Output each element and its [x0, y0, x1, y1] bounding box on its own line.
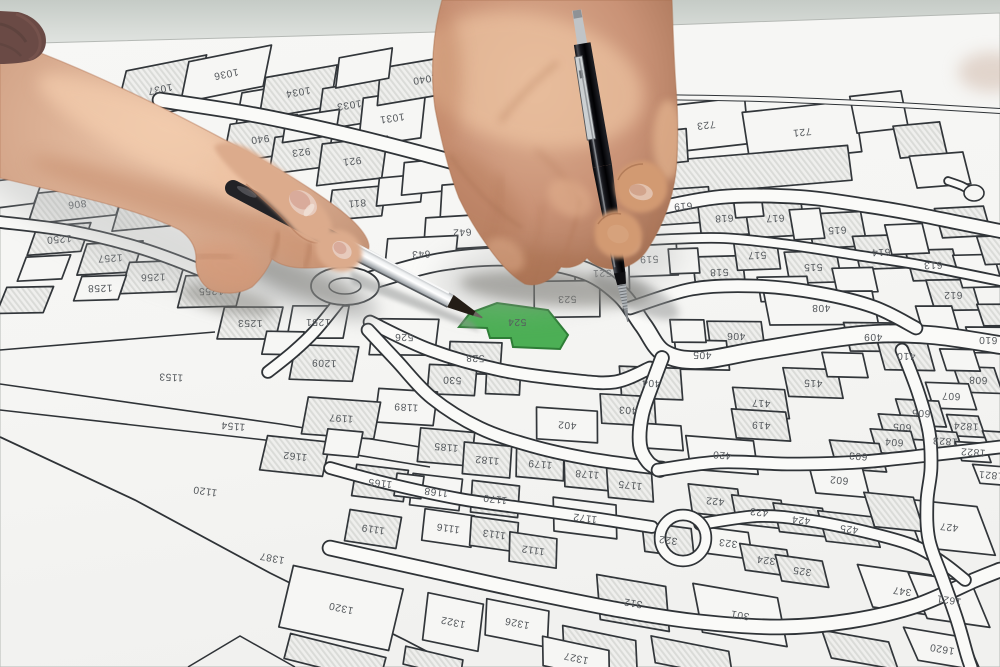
svg-text:419: 419 [751, 418, 770, 430]
svg-text:615: 615 [827, 224, 846, 236]
svg-text:517: 517 [747, 249, 766, 261]
svg-text:427: 427 [939, 520, 959, 533]
svg-text:613: 613 [923, 259, 942, 271]
svg-text:1258: 1258 [87, 282, 112, 294]
svg-text:608: 608 [968, 374, 987, 386]
svg-text:1153: 1153 [159, 370, 184, 382]
svg-text:423: 423 [749, 505, 769, 518]
svg-text:604: 604 [884, 435, 903, 447]
svg-text:528: 528 [465, 352, 484, 363]
svg-text:614: 614 [871, 246, 890, 258]
svg-text:612: 612 [944, 289, 963, 300]
svg-text:1154: 1154 [220, 419, 245, 432]
svg-text:610: 610 [979, 334, 998, 345]
svg-text:607: 607 [941, 390, 960, 402]
svg-text:602: 602 [829, 473, 849, 486]
svg-text:518: 518 [709, 266, 728, 278]
svg-text:1178: 1178 [574, 467, 599, 480]
svg-text:605: 605 [892, 420, 911, 432]
svg-text:1821: 1821 [978, 468, 1000, 481]
svg-text:425: 425 [839, 522, 859, 535]
svg-text:721: 721 [792, 125, 812, 138]
svg-text:408: 408 [812, 302, 831, 313]
svg-text:424: 424 [791, 513, 811, 526]
svg-text:530: 530 [442, 374, 461, 386]
svg-text:1823: 1823 [932, 434, 958, 447]
svg-text:642: 642 [452, 225, 471, 237]
svg-text:606: 606 [911, 407, 930, 419]
svg-text:409: 409 [864, 331, 883, 342]
svg-text:1179: 1179 [527, 457, 552, 470]
svg-text:618: 618 [714, 211, 733, 223]
svg-text:1251: 1251 [305, 316, 330, 327]
svg-text:404: 404 [641, 377, 660, 389]
svg-text:515: 515 [803, 261, 822, 273]
svg-text:617: 617 [765, 211, 784, 223]
svg-text:402: 402 [557, 418, 577, 430]
svg-text:1182: 1182 [474, 453, 499, 466]
svg-text:619: 619 [673, 199, 693, 211]
svg-text:1189: 1189 [394, 400, 419, 412]
svg-text:524: 524 [508, 316, 527, 327]
svg-text:1824: 1824 [953, 419, 979, 431]
svg-text:1822: 1822 [960, 445, 986, 458]
svg-text:921: 921 [342, 154, 362, 167]
svg-text:420: 420 [712, 448, 732, 460]
svg-text:1185: 1185 [433, 440, 458, 453]
svg-text:415: 415 [803, 377, 822, 389]
svg-text:410: 410 [896, 350, 915, 361]
svg-text:1253: 1253 [237, 317, 262, 328]
svg-text:723: 723 [696, 118, 716, 131]
svg-text:643: 643 [411, 248, 430, 260]
svg-text:405: 405 [692, 349, 711, 360]
svg-text:603: 603 [848, 449, 868, 461]
svg-text:406: 406 [727, 330, 746, 341]
svg-text:526: 526 [395, 331, 414, 342]
svg-text:1209: 1209 [311, 357, 336, 369]
svg-text:422: 422 [705, 494, 725, 507]
svg-text:811: 811 [347, 196, 366, 209]
svg-text:403: 403 [618, 403, 637, 415]
svg-text:417: 417 [751, 397, 770, 409]
svg-text:1197: 1197 [329, 411, 354, 424]
